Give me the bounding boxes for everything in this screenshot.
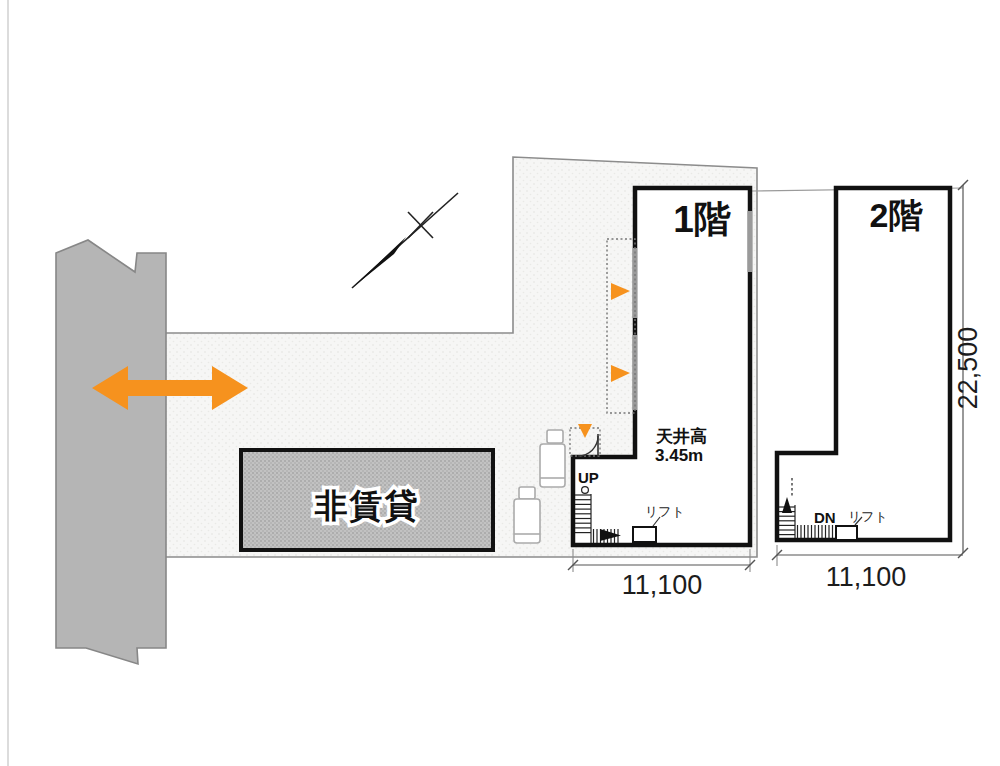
- floor2-plan: 2階: [777, 188, 950, 540]
- floor-plan-page: 非賃貸 1階 天井高 3.45m: [0, 0, 1000, 766]
- ceiling-height-value: 3.45m: [655, 446, 703, 465]
- floor-plan-drawing: 非賃貸 1階 天井高 3.45m: [0, 0, 1000, 766]
- floor1-title: 1階: [673, 199, 732, 240]
- non-rental-area: 非賃貸: [241, 450, 493, 550]
- stairs-1f-label: UP: [578, 469, 599, 486]
- north-arrow-icon: [352, 193, 458, 288]
- floor2-title: 2階: [870, 196, 924, 234]
- non-rental-label: 非賃貸: [315, 487, 420, 524]
- ceiling-height-label: 天井高: [655, 426, 707, 446]
- road: [56, 240, 166, 664]
- stairs-2f-label: DN: [814, 509, 836, 526]
- dimension-2f-width: 11,100: [772, 545, 963, 592]
- lift-1f-label: リフト: [645, 504, 685, 519]
- dimension-2f-width-value: 11,100: [826, 562, 907, 592]
- lift-2f-label: リフト: [848, 509, 888, 524]
- dimension-1f-width-value: 11,100: [622, 570, 703, 600]
- dimension-2f-height-value: 22,500: [953, 327, 983, 410]
- dimension-2f-height: 22,500: [953, 180, 983, 558]
